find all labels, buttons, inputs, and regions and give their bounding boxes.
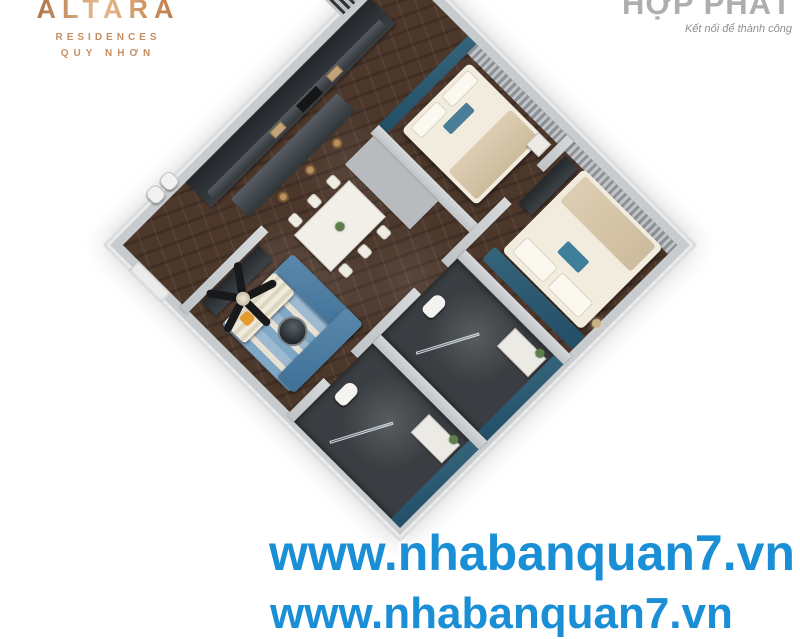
bed-throw [557, 241, 590, 274]
page: { "branding": { "altara": { "name": "ALT… [0, 0, 800, 600]
shower-glass [416, 333, 480, 355]
hopphat-wordmark: HỢP PHÁT [622, 0, 792, 22]
altara-logo: ALTARA RESIDENCES QUY NHƠN [28, 0, 188, 59]
altara-wordmark: ALTARA [28, 0, 188, 25]
watermark-url-clipped: www.nhabanquan7.vn [270, 589, 690, 639]
bed-throw [442, 102, 475, 135]
hopphat-tagline: Kết nối để thành công [622, 23, 792, 35]
floorplan-scene [103, 0, 697, 542]
watermark-url: www.nhabanquan7.vn [262, 524, 800, 582]
altara-sub-residences: RESIDENCES [28, 32, 188, 43]
fan-blade [233, 262, 246, 296]
altara-sub-location: QUY NHƠN [28, 48, 188, 59]
table-plant [334, 220, 347, 233]
fan-blade [206, 289, 240, 302]
hopphat-logo: HỢP PHÁT Kết nối để thành công [622, 0, 792, 35]
bathroom1-toilet [421, 292, 449, 320]
bathroom2-toilet [333, 380, 361, 408]
shower-glass [329, 422, 393, 444]
apartment-outline [103, 0, 697, 542]
